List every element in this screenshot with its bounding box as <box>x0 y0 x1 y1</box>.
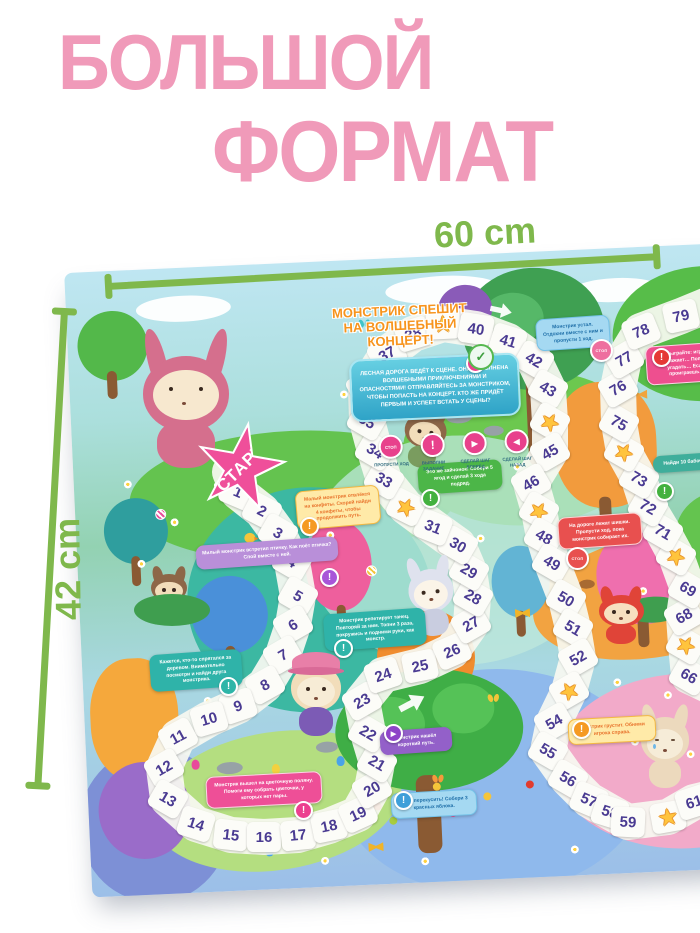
forward-arrow-icon: ▶ <box>462 431 487 456</box>
exclamation-icon: ! <box>219 677 238 696</box>
stop-icon: СТОП <box>566 547 589 570</box>
board-cell-59: 59 <box>610 806 646 838</box>
eye <box>435 589 439 593</box>
eye <box>162 588 166 592</box>
legend-label: ПРОПУСТИ ХОД <box>374 461 409 468</box>
exclamation-icon: ! <box>421 489 440 508</box>
bubble-pinecones: На дороге лежат шишки. Пропусти ход, пок… <box>557 512 643 550</box>
legend-item: ▶СДЕЛАЙ ШАГ ВПЕРЁД <box>455 430 495 470</box>
bush <box>134 594 210 626</box>
body <box>606 624 636 644</box>
body <box>157 420 215 468</box>
exclamation-icon: ! <box>572 720 591 739</box>
body <box>649 759 681 788</box>
legend-item: !ВЫПОЛНИ ЗАДАНИЕ <box>413 432 453 472</box>
bubble-act-out: Отыграйте: игрок изображает… Попробуй уг… <box>645 341 700 385</box>
back-arrow-icon: ◀ <box>504 429 529 454</box>
product-image: БОЛЬШОЙ ФОРМАТ 60 cm 42 cm <box>0 0 700 933</box>
legend-label: ВЫПОЛНИ ЗАДАНИЕ <box>414 459 452 472</box>
character-monster-with-hat <box>288 652 344 736</box>
mouth <box>314 697 318 700</box>
heading-line-2: ФОРМАТ <box>212 102 552 201</box>
forward-arrow-icon: ▶ <box>384 724 403 743</box>
stop-icon: СТОП <box>378 434 403 459</box>
check-icon: ✓ <box>468 344 494 370</box>
eye <box>421 590 425 594</box>
body <box>299 707 333 736</box>
exclamation-icon: ! <box>320 568 339 587</box>
board-intro-text: ЛЕСНАЯ ДОРОГА ВЕДЁТ К СЦЕНЕ. ОНА НАПОЛНЕ… <box>349 352 522 422</box>
mouth <box>619 617 623 620</box>
exclamation-icon: ! <box>394 791 413 810</box>
legend-label: СДЕЛАЙ ШАГ НАЗАД <box>498 455 536 468</box>
stop-icon: СТОП <box>590 339 613 362</box>
board-legend: СТОППРОПУСТИ ХОД!ВЫПОЛНИ ЗАДАНИЕ▶СДЕЛАЙ … <box>371 428 539 474</box>
eye <box>169 387 173 391</box>
mouth <box>663 749 667 752</box>
face <box>153 370 218 420</box>
exclamation-icon: ! <box>300 517 319 536</box>
heading-line-1: БОЛЬШОЙ <box>58 19 432 108</box>
exclamation-icon: ! <box>420 432 445 457</box>
exclamation-icon: ! <box>334 639 353 658</box>
board-cell-16: 16 <box>247 822 281 852</box>
legend-item: СТОППРОПУСТИ ХОД <box>371 434 411 474</box>
exclamation-icon: ! <box>294 801 313 820</box>
eye <box>671 739 675 741</box>
legend-item: ◀СДЕЛАЙ ШАГ НАЗАД <box>497 428 537 468</box>
exclamation-icon: ! <box>655 482 674 501</box>
legend-label: СДЕЛАЙ ШАГ ВПЕРЁД <box>456 457 494 470</box>
width-measure-label: 60 cm <box>404 208 566 258</box>
hat-brim <box>288 667 344 675</box>
board-title: МОНСТРИК СПЕШИТ НА ВОЛШЕБНЫЙ КОНЦЕРТ! <box>299 300 501 353</box>
character-red-monster <box>596 586 646 644</box>
board-cell-15: 15 <box>212 818 249 852</box>
exclamation-icon: ! <box>652 348 671 367</box>
character-pink-bunny-monster <box>138 328 234 468</box>
height-measure-label: 42 cm <box>46 489 91 650</box>
